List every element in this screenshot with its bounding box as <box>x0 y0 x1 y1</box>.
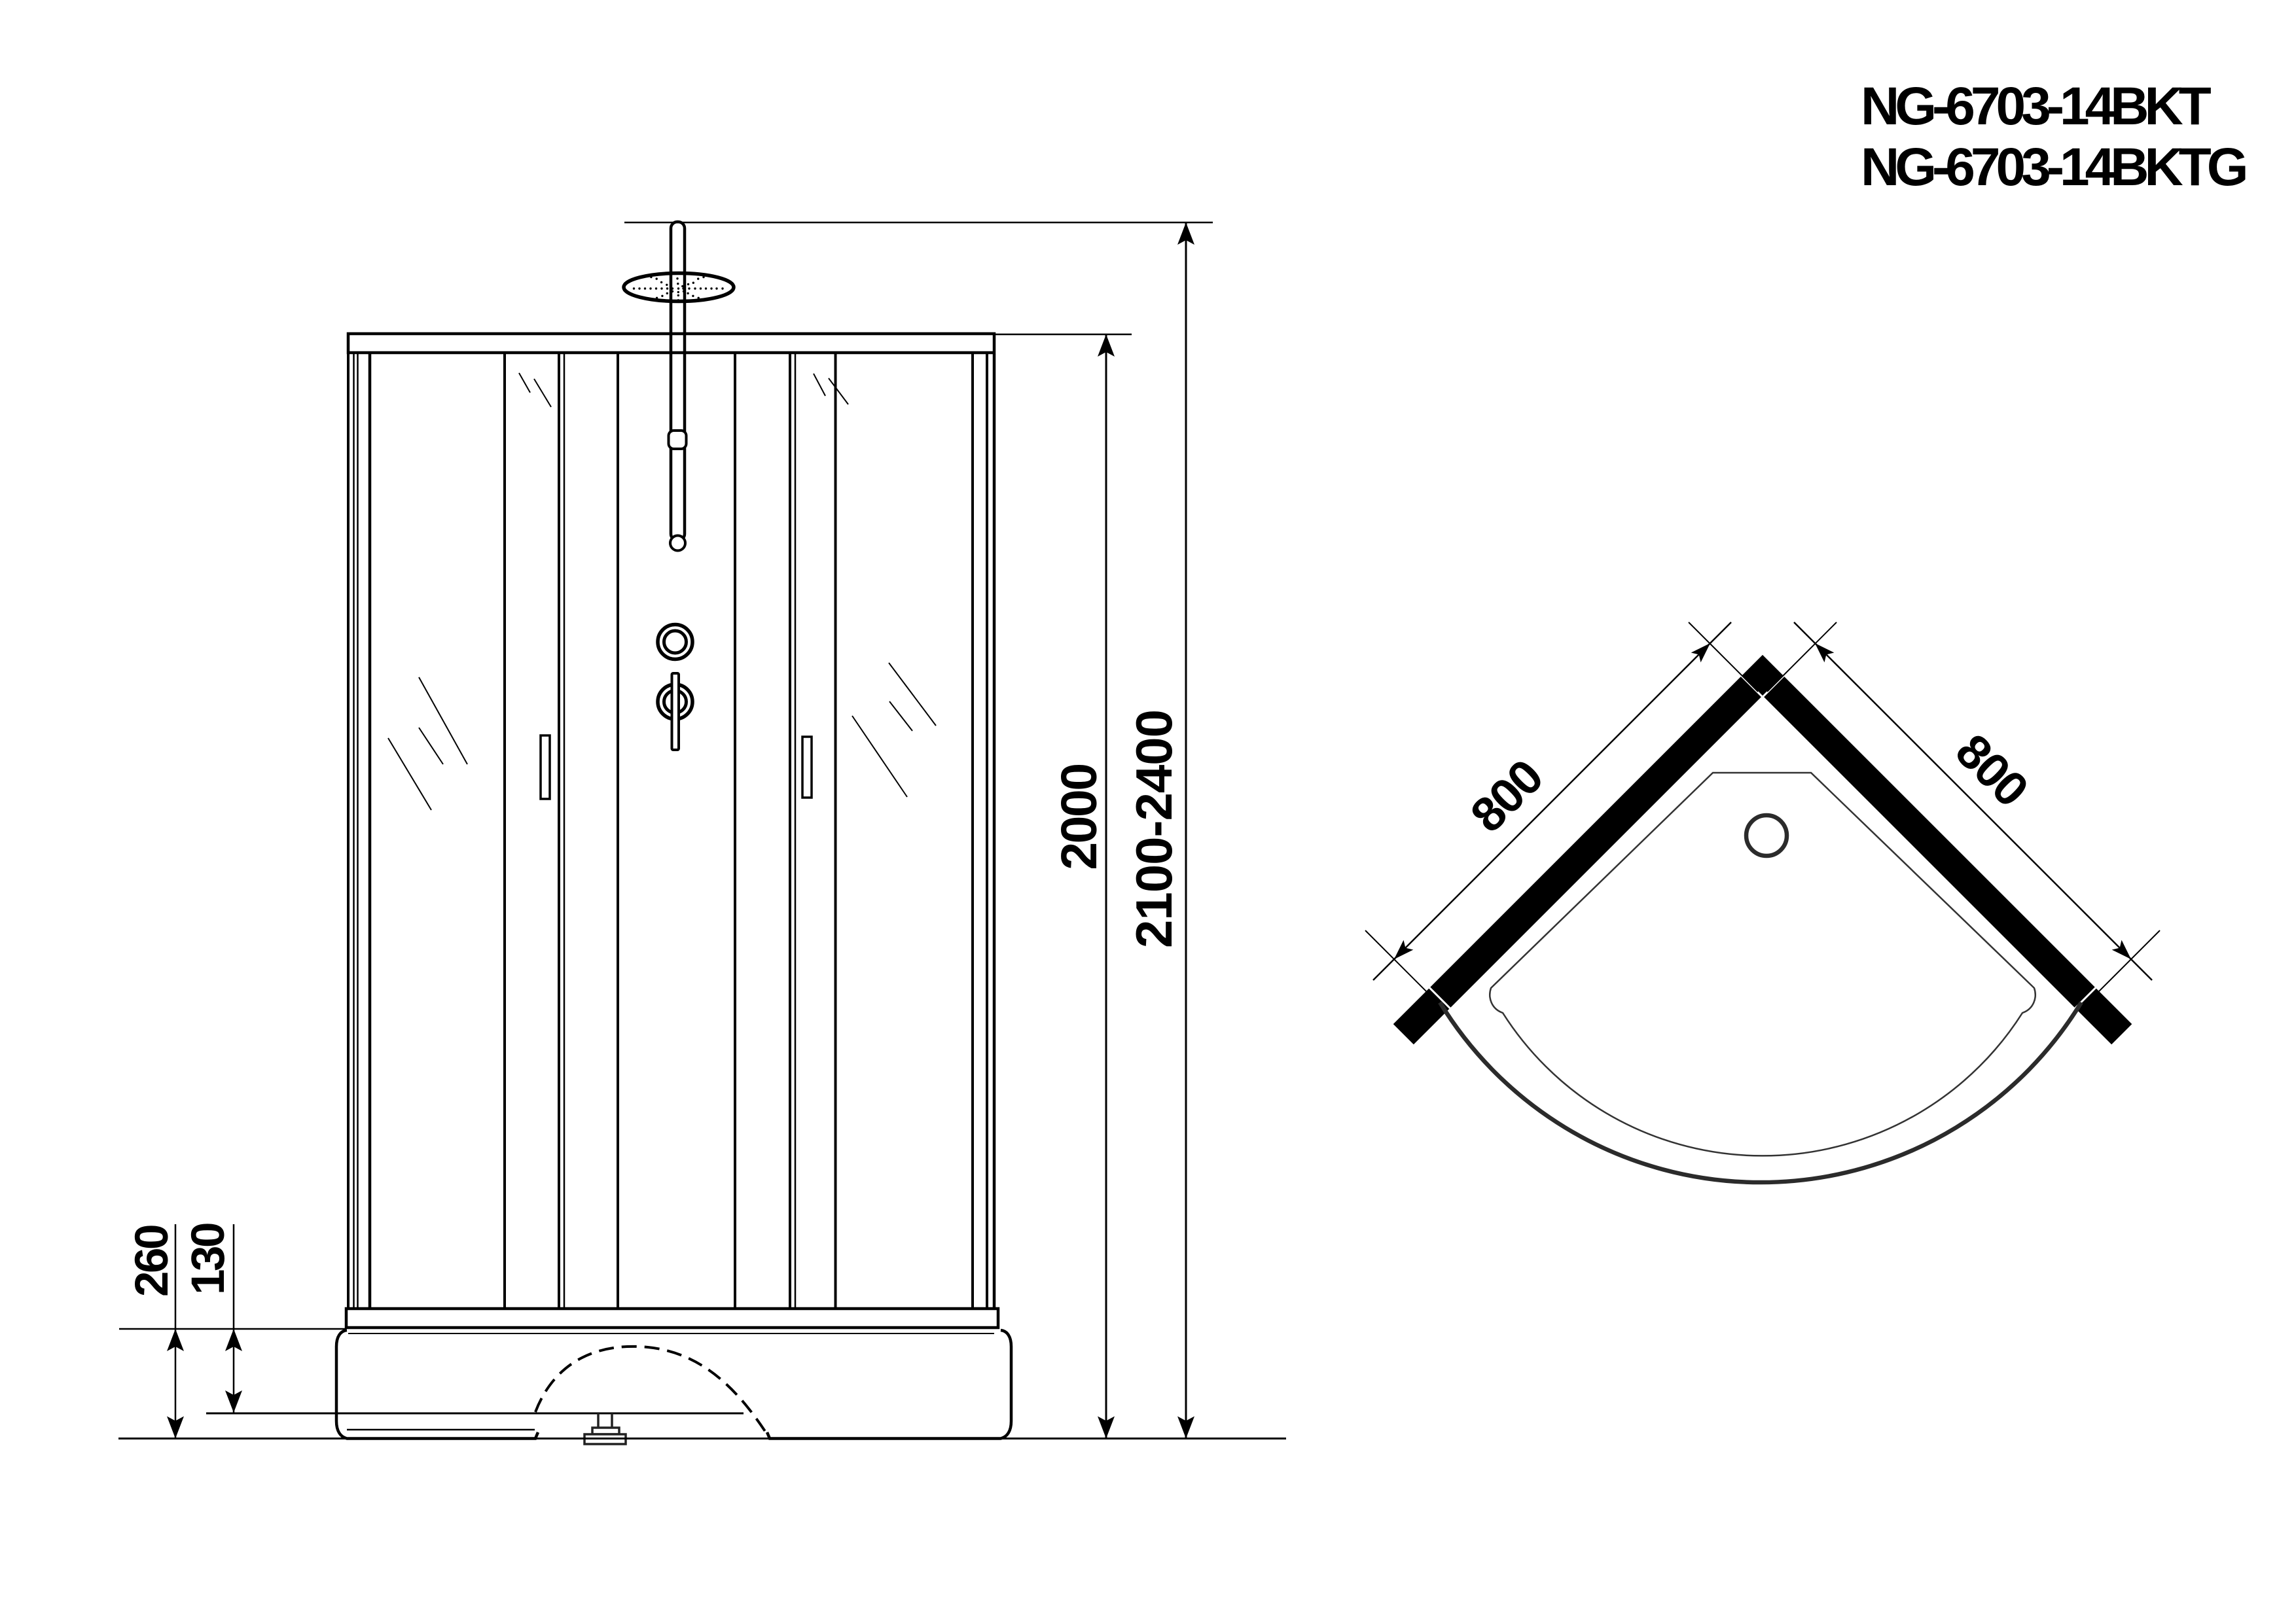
svg-text:2100-2400: 2100-2400 <box>1125 710 1183 948</box>
svg-text:NG-6703-14BKT: NG-6703-14BKT <box>1861 77 2212 136</box>
svg-text:2000: 2000 <box>1051 764 1107 870</box>
svg-text:NG-6703-14BKTG: NG-6703-14BKTG <box>1861 137 2246 197</box>
svg-text:130: 130 <box>183 1224 234 1295</box>
svg-text:260: 260 <box>126 1226 178 1297</box>
